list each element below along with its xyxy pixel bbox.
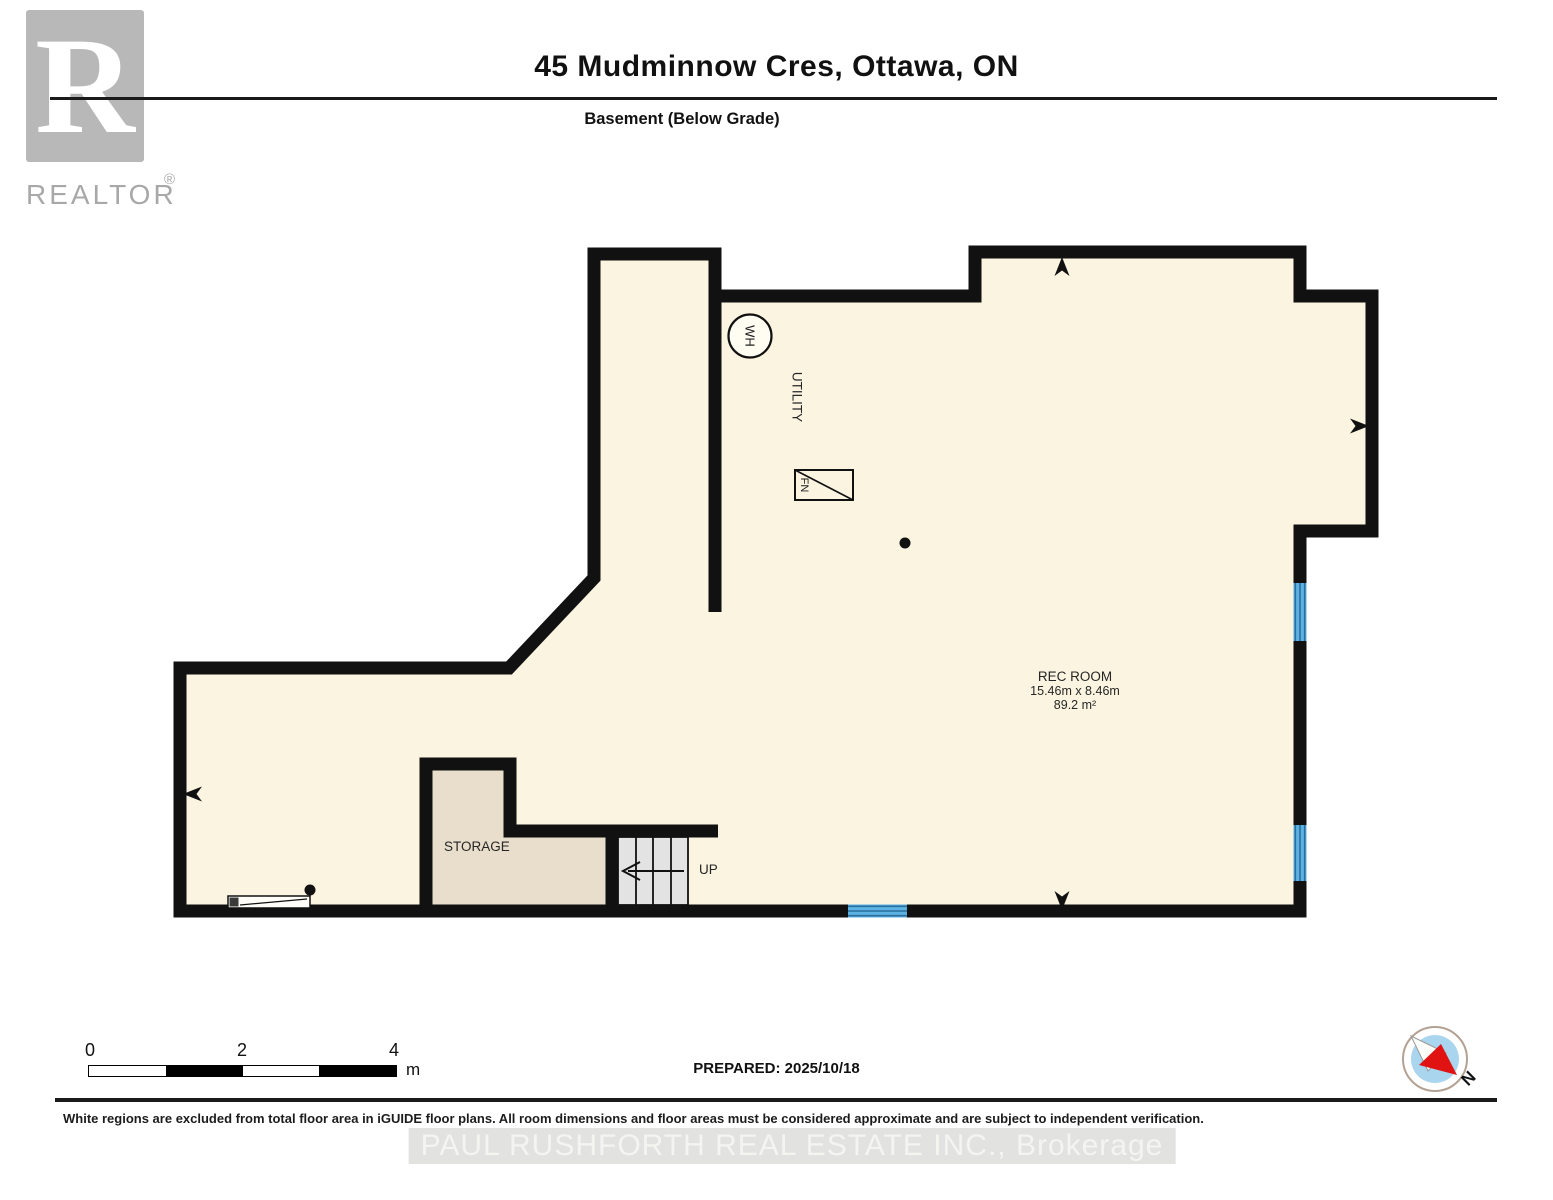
realtor-logo-reg: ®	[164, 171, 175, 188]
water-heater-label: WH	[743, 325, 758, 347]
realtor-logo-letter: R	[35, 9, 136, 162]
workbench-icon	[228, 896, 310, 908]
realtor-logo: R REALTOR ®	[24, 8, 194, 218]
floor-plan-page: WH FN UTILITY REC ROOM 15.46m x 8.46m 89…	[0, 0, 1553, 1200]
furnace-label: FN	[798, 478, 810, 493]
stairs-up-label: UP	[699, 862, 718, 877]
camera-point-2	[305, 885, 316, 896]
floor-area	[180, 252, 1372, 911]
storage-label: STORAGE	[444, 839, 510, 854]
camera-point-1	[900, 538, 911, 549]
floor-plan-drawing: WH FN UTILITY REC ROOM 15.46m x 8.46m 89…	[0, 0, 1553, 1200]
window-bottom	[848, 905, 907, 918]
rec-room-area: 89.2 m²	[1054, 698, 1096, 712]
rec-room-dimensions: 15.46m x 8.46m	[1030, 684, 1120, 698]
window-right-upper	[1294, 583, 1307, 641]
header-divider	[50, 97, 1497, 100]
realtor-logo-text: REALTOR	[26, 179, 177, 210]
utility-label: UTILITY	[790, 372, 805, 422]
window-right-lower	[1294, 825, 1307, 881]
rec-room-label: REC ROOM	[1038, 669, 1112, 684]
